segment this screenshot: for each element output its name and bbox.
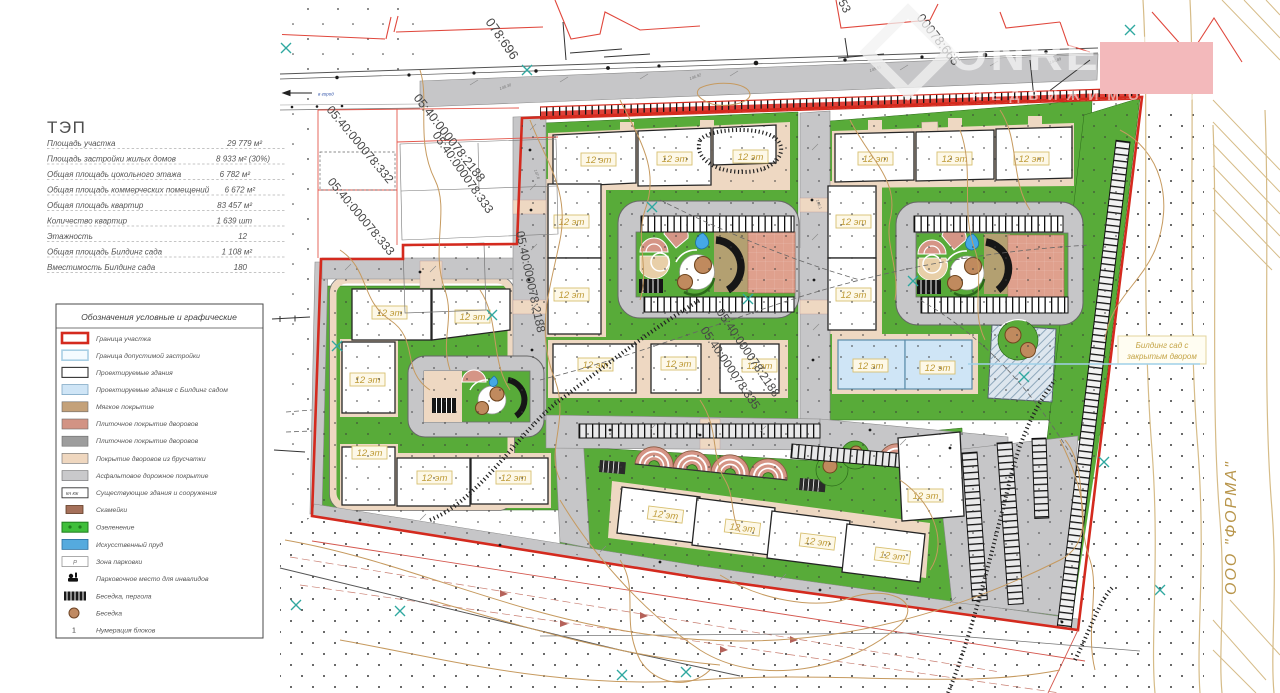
- svg-text:Общая площадь Билдинг сада: Общая площадь Билдинг сада: [47, 248, 163, 257]
- svg-text:ООО "ФОРМА": ООО "ФОРМА": [1223, 460, 1240, 595]
- svg-text:Асфальтовое дорожное покрытие: Асфальтовое дорожное покрытие: [95, 472, 209, 480]
- svg-text:180: 180: [234, 263, 248, 272]
- svg-text:6 672 м²: 6 672 м²: [225, 186, 256, 195]
- svg-text:Граница допустимой застройки: Граница допустимой застройки: [96, 352, 200, 360]
- svg-text:Плиточное покрытие дворовов: Плиточное покрытие дворовов: [96, 420, 199, 428]
- svg-text:1 639 шт: 1 639 шт: [216, 217, 252, 226]
- svg-text:Обозначения условные и графиче: Обозначения условные и графические: [81, 312, 237, 322]
- svg-text:Общая площадь квартир: Общая площадь квартир: [47, 201, 144, 210]
- svg-text:в город: в город: [318, 92, 334, 97]
- svg-text:6 782 м²: 6 782 м²: [220, 170, 251, 179]
- svg-text:Проектируемые здания с Билдинг: Проектируемые здания с Билдинг садом: [96, 386, 228, 394]
- svg-text:Общая площадь коммерческих пом: Общая площадь коммерческих помещений: [47, 186, 210, 195]
- svg-text:Р: Р: [73, 561, 77, 567]
- svg-text:Нумерация блоков: Нумерация блоков: [96, 627, 156, 635]
- svg-text:1 108 м²: 1 108 м²: [222, 248, 253, 257]
- svg-text:закрытым двором: закрытым двором: [1126, 352, 1197, 361]
- svg-text:8 933 м² (30%): 8 933 м² (30%): [216, 155, 270, 164]
- svg-text:Искусственный пруд: Искусственный пруд: [96, 541, 163, 549]
- svg-text:1: 1: [72, 628, 76, 635]
- svg-text:12: 12: [238, 232, 247, 241]
- svg-text:Озеленение: Озеленение: [96, 525, 135, 532]
- svg-text:Зона парковки: Зона парковки: [96, 559, 142, 566]
- svg-text:кн кж: кн кж: [66, 491, 79, 497]
- svg-text:Общая площадь цокольного этажа: Общая площадь цокольного этажа: [47, 170, 182, 179]
- svg-text:Мягкое покрытие: Мягкое покрытие: [96, 404, 154, 411]
- svg-text:Граница участка: Граница участка: [96, 336, 151, 343]
- svg-text:Беседка, пергола: Беседка, пергола: [96, 593, 152, 601]
- svg-text:Существующие здания и сооружен: Существующие здания и сооружения: [96, 489, 217, 497]
- svg-text:ТЭП: ТЭП: [47, 118, 86, 137]
- svg-text:Вместимость Билдинг сада: Вместимость Билдинг сада: [47, 263, 156, 272]
- svg-text:83 457 м²: 83 457 м²: [217, 201, 252, 210]
- svg-text:Билдинг сад с: Билдинг сад с: [1136, 341, 1189, 350]
- svg-text:Парковочное место для инвалидо: Парковочное место для инвалидов: [96, 575, 209, 583]
- svg-text:Беседка: Беседка: [96, 610, 122, 618]
- svg-text:Проектируемые здания: Проектируемые здания: [96, 369, 173, 377]
- svg-text:Площадь участка: Площадь участка: [47, 139, 116, 148]
- svg-text:Скамейки: Скамейки: [96, 506, 127, 514]
- svg-text:Покрытие дворовов из брусчатки: Покрытие дворовов из брусчатки: [96, 455, 206, 463]
- svg-text:29 779 м²: 29 779 м²: [226, 139, 262, 148]
- svg-text:Плиточное покрытие дворовов: Плиточное покрытие дворовов: [96, 437, 199, 445]
- svg-text:Площадь застройки жилых домов: Площадь застройки жилых домов: [47, 155, 176, 164]
- svg-text:Количество квартир: Количество квартир: [47, 217, 128, 226]
- svg-text:Этажность: Этажность: [47, 232, 93, 241]
